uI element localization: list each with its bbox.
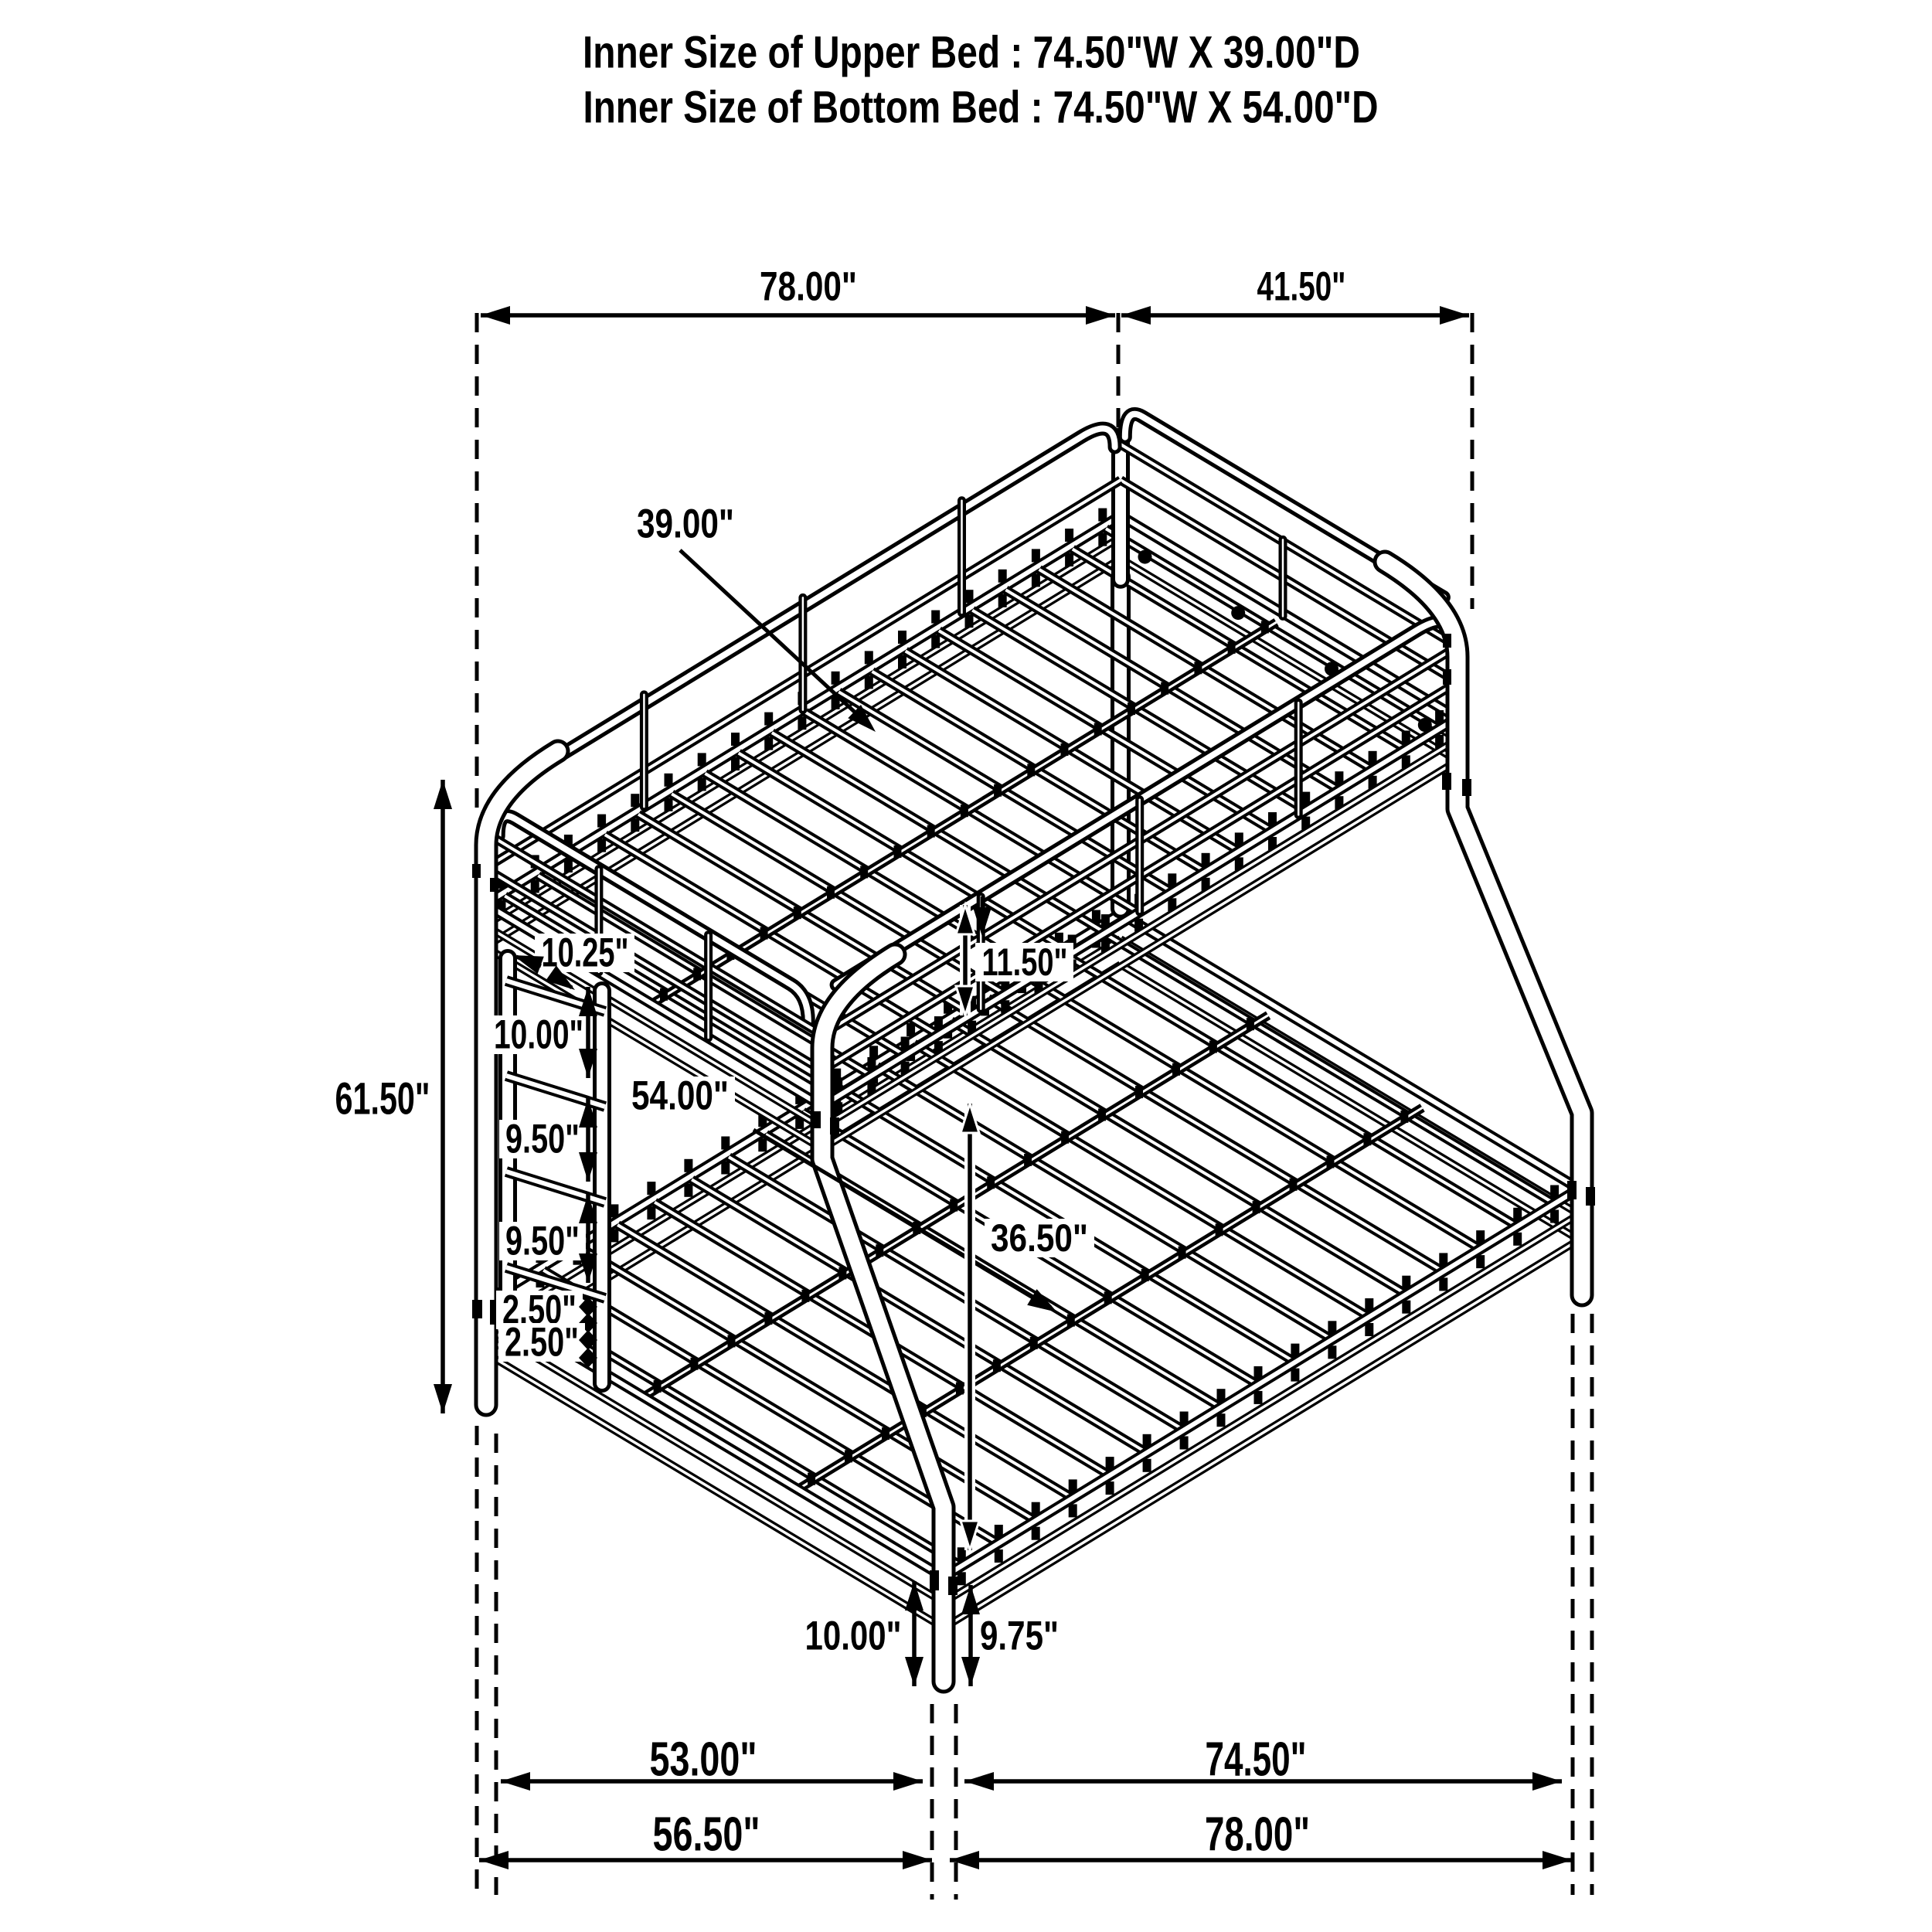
svg-text:53.00": 53.00" xyxy=(650,1733,757,1787)
svg-text:9.50": 9.50" xyxy=(505,1117,580,1162)
svg-text:39.00": 39.00" xyxy=(637,502,734,547)
svg-text:61.50": 61.50" xyxy=(335,1074,430,1124)
svg-text:9.50": 9.50" xyxy=(505,1219,580,1264)
svg-text:74.50": 74.50" xyxy=(1206,1733,1307,1787)
svg-text:36.50": 36.50" xyxy=(991,1216,1088,1260)
svg-text:41.50": 41.50" xyxy=(1257,264,1346,310)
svg-text:2.50": 2.50" xyxy=(505,1320,579,1366)
svg-text:10.00": 10.00" xyxy=(805,1614,902,1659)
svg-text:Inner Size of Bottom Bed : 74.: Inner Size of Bottom Bed : 74.50"W X 54.… xyxy=(583,83,1379,133)
svg-text:Inner Size of Upper Bed : 74.5: Inner Size of Upper Bed : 74.50"W X 39.0… xyxy=(583,28,1360,78)
svg-text:78.00": 78.00" xyxy=(760,264,857,310)
svg-text:9.75": 9.75" xyxy=(980,1614,1059,1659)
svg-text:10.00": 10.00" xyxy=(494,1012,583,1058)
svg-text:54.00": 54.00" xyxy=(631,1073,729,1119)
svg-text:56.50": 56.50" xyxy=(653,1808,760,1862)
svg-text:78.00": 78.00" xyxy=(1205,1808,1310,1862)
svg-text:11.50": 11.50" xyxy=(982,940,1068,984)
